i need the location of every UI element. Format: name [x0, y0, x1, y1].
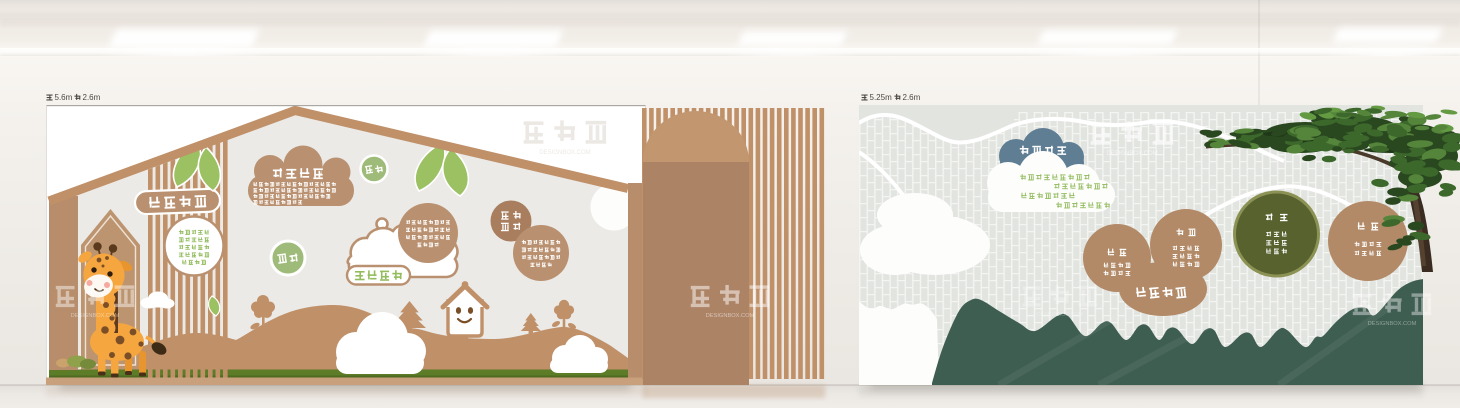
svg-text:DESIGNBOX.COM: DESIGNBOX.COM — [706, 313, 755, 319]
svg-text:DESIGNBOX.COM: DESIGNBOX.COM — [71, 313, 120, 319]
svg-text:DESIGNBOX.COM: DESIGNBOX.COM — [1106, 151, 1157, 157]
svg-text:DESIGNBOX.COM: DESIGNBOX.COM — [539, 150, 590, 156]
svg-text:DESIGNBOX.COM: DESIGNBOX.COM — [1037, 312, 1084, 318]
svg-text:DESIGNBOX.COM: DESIGNBOX.COM — [1368, 321, 1417, 327]
